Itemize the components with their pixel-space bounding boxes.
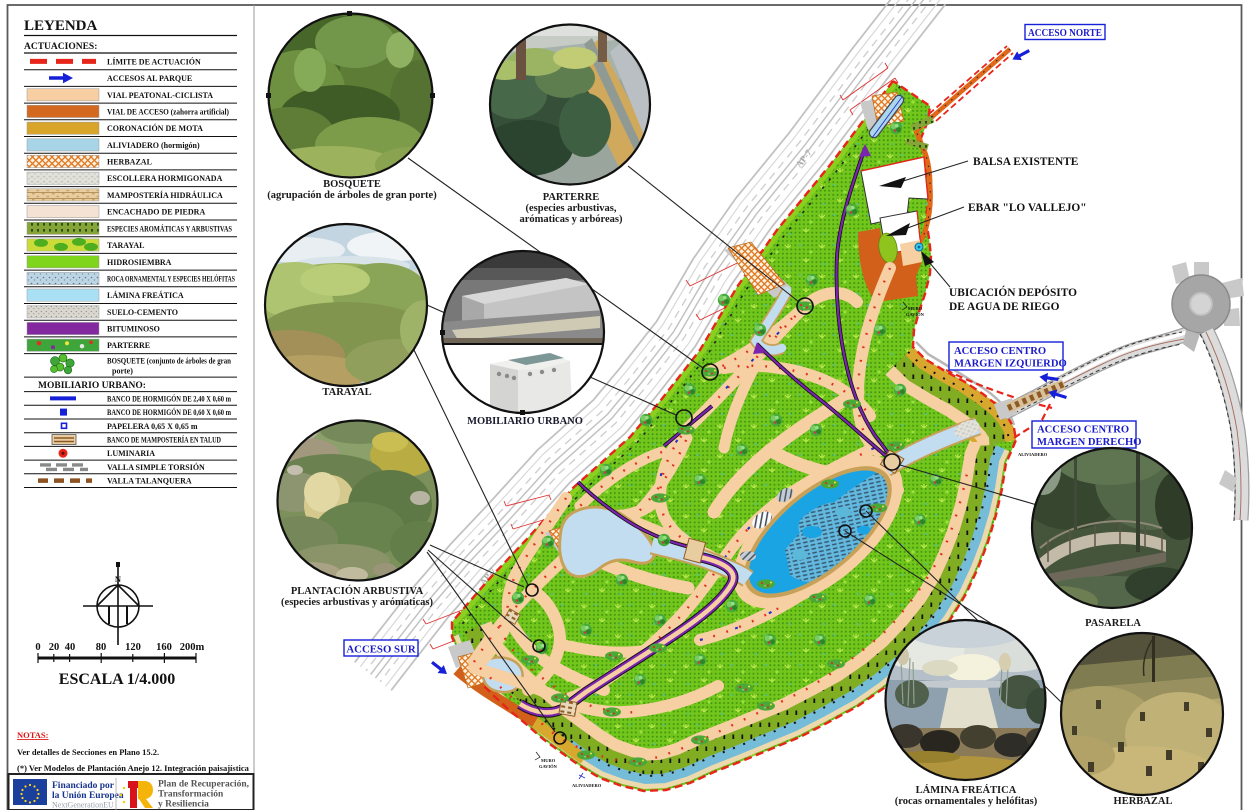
svg-text:ENCACHADO DE PIEDRA: ENCACHADO DE PIEDRA <box>107 208 205 217</box>
svg-text:PLANTACIÓN ARBUSTIVA: PLANTACIÓN ARBUSTIVA <box>291 585 424 597</box>
svg-text:40: 40 <box>65 642 76 653</box>
svg-text:ALIVIADERO: ALIVIADERO <box>572 783 602 788</box>
svg-text:HERBAZAL: HERBAZAL <box>1114 796 1173 807</box>
svg-text:EBAR "LO VALLEJO": EBAR "LO VALLEJO" <box>968 202 1087 214</box>
svg-text:LÁMINA FREÁTICA: LÁMINA FREÁTICA <box>107 290 184 300</box>
svg-text:DE AGUA DE RIEGO: DE AGUA DE RIEGO <box>949 301 1060 313</box>
svg-text:(*) Ver Modelos de Plantación: (*) Ver Modelos de Plantación Anejo 12. … <box>17 763 250 773</box>
svg-text:MARGEN DERECHO: MARGEN DERECHO <box>1037 437 1141 448</box>
svg-text:PARTERRE: PARTERRE <box>107 341 150 350</box>
svg-text:(agrupación de árboles de gran: (agrupación de árboles de gran porte) <box>267 190 437 201</box>
svg-text:VIAL DE ACCESO (zahorra artifi: VIAL DE ACCESO (zahorra artificial) <box>107 107 229 116</box>
svg-text:ESCOLLERA HORMIGONADA: ESCOLLERA HORMIGONADA <box>107 174 223 183</box>
svg-text:UBICACIÓN DEPÓSITO: UBICACIÓN DEPÓSITO <box>949 287 1077 299</box>
svg-text:ACCESO NORTE: ACCESO NORTE <box>1028 28 1102 39</box>
svg-text:MOBILIARIO URBANO: MOBILIARIO URBANO <box>467 416 583 427</box>
svg-text:Transformación: Transformación <box>158 790 224 800</box>
svg-text:BALSA EXISTENTE: BALSA EXISTENTE <box>973 156 1079 168</box>
svg-text:VALLA SIMPLE TORSIÓN: VALLA SIMPLE TORSIÓN <box>107 462 205 472</box>
svg-text:ACCESO CENTRO: ACCESO CENTRO <box>1037 425 1129 436</box>
svg-text:Ver detalles de Secciones en P: Ver detalles de Secciones en Plano 15.2. <box>17 747 159 757</box>
svg-text:GAVIÓN: GAVIÓN <box>906 312 925 317</box>
svg-text:BANCO DE MAMPOSTERÍA EN TALUD: BANCO DE MAMPOSTERÍA EN TALUD <box>107 435 221 445</box>
svg-text:(especies arbustivas y arómati: (especies arbustivas y arómaticas) <box>281 597 433 608</box>
svg-text:MURO: MURO <box>908 306 923 311</box>
svg-text:GAVIÓN: GAVIÓN <box>539 764 558 769</box>
svg-text:MAMPOSTERÍA HIDRÁULICA: MAMPOSTERÍA HIDRÁULICA <box>107 190 223 200</box>
svg-text:0: 0 <box>35 642 40 653</box>
svg-text:Financiado por: Financiado por <box>52 781 115 791</box>
svg-text:ROCA ORNAMENTAL Y ESPECIES HEL: ROCA ORNAMENTAL Y ESPECIES HELÓFITAS <box>107 274 235 284</box>
svg-text:(rocas ornamentales y helófita: (rocas ornamentales y helófitas) <box>895 796 1038 807</box>
svg-text:ACCESO SUR: ACCESO SUR <box>346 644 415 656</box>
svg-text:LEYENDA: LEYENDA <box>24 18 98 34</box>
svg-text:LÍMITE DE ACTUACIÓN: LÍMITE DE ACTUACIÓN <box>107 56 201 66</box>
svg-text:BITUMINOSO: BITUMINOSO <box>107 325 160 334</box>
svg-text:20: 20 <box>49 642 60 653</box>
svg-text:200m: 200m <box>180 642 205 653</box>
svg-text:PAPELERA 0,65 X 0,65 m: PAPELERA 0,65 X 0,65 m <box>107 422 198 431</box>
svg-text:ACTUACIONES:: ACTUACIONES: <box>24 42 97 52</box>
svg-text:LUMINARIA: LUMINARIA <box>107 449 155 458</box>
svg-text:BANCO DE HORMIGÓN DE 0,60 X 0,: BANCO DE HORMIGÓN DE 0,60 X 0,60 m <box>107 407 231 417</box>
svg-text:HERBAZAL: HERBAZAL <box>107 158 152 167</box>
svg-text:VIAL PEATONAL-CICLISTA: VIAL PEATONAL-CICLISTA <box>107 91 213 100</box>
svg-text:porte): porte) <box>112 367 133 376</box>
svg-text:NOTAS:: NOTAS: <box>17 730 49 740</box>
svg-text:ALIVIADERO: ALIVIADERO <box>1018 452 1048 457</box>
svg-text:VALLA TALANQUERA: VALLA TALANQUERA <box>107 477 192 486</box>
svg-text:BANCO DE HORMIGÓN DE 2,40 X 0,: BANCO DE HORMIGÓN DE 2,40 X 0,60 m <box>107 393 231 403</box>
svg-text:ACCESO CENTRO: ACCESO CENTRO <box>954 346 1046 357</box>
svg-text:ALIVIADERO (hormigón): ALIVIADERO (hormigón) <box>107 141 200 150</box>
svg-text:NextGenerationEU: NextGenerationEU <box>52 801 114 810</box>
svg-text:SUELO-CEMENTO: SUELO-CEMENTO <box>107 308 178 317</box>
svg-text:PARTERRE: PARTERRE <box>543 192 600 203</box>
svg-text:120: 120 <box>125 642 141 653</box>
svg-text:(especies arbustivas,: (especies arbustivas, <box>526 203 617 214</box>
svg-text:ESCALA 1/4.000: ESCALA 1/4.000 <box>59 671 175 688</box>
svg-text:y Resiliencia: y Resiliencia <box>158 800 209 810</box>
svg-text:PASARELA: PASARELA <box>1085 618 1141 629</box>
svg-text:BOSQUETE (conjunto de árboles: BOSQUETE (conjunto de árboles de gran <box>107 357 231 366</box>
svg-text:TARAYAL: TARAYAL <box>322 387 371 398</box>
svg-text:ACCESOS AL PARQUE: ACCESOS AL PARQUE <box>107 74 192 83</box>
svg-text:BOSQUETE: BOSQUETE <box>323 179 381 190</box>
svg-text:HIDROSIEMBRA: HIDROSIEMBRA <box>107 258 172 267</box>
svg-text:ESPECIES AROMÁTICAS Y ARBUSTIV: ESPECIES AROMÁTICAS Y ARBUSTIVAS <box>107 223 232 233</box>
svg-text:Plan de Recuperación,: Plan de Recuperación, <box>158 780 250 790</box>
svg-text:la Unión Europea: la Unión Europea <box>52 791 124 801</box>
svg-text:TARAYAL: TARAYAL <box>107 241 145 250</box>
svg-text:MURO: MURO <box>541 758 556 763</box>
svg-text:MARGEN IZQUIERDO: MARGEN IZQUIERDO <box>954 359 1067 370</box>
svg-text:CORONACIÓN DE MOTA: CORONACIÓN DE MOTA <box>107 123 203 133</box>
svg-text:N: N <box>115 574 122 584</box>
svg-text:80: 80 <box>96 642 107 653</box>
svg-text:arómaticas y arbóreas): arómaticas y arbóreas) <box>519 214 623 225</box>
svg-text:160: 160 <box>156 642 172 653</box>
svg-text:MOBILIARIO URBANO:: MOBILIARIO URBANO: <box>38 381 146 391</box>
svg-text:LÁMINA FREÁTICA: LÁMINA FREÁTICA <box>916 784 1017 796</box>
